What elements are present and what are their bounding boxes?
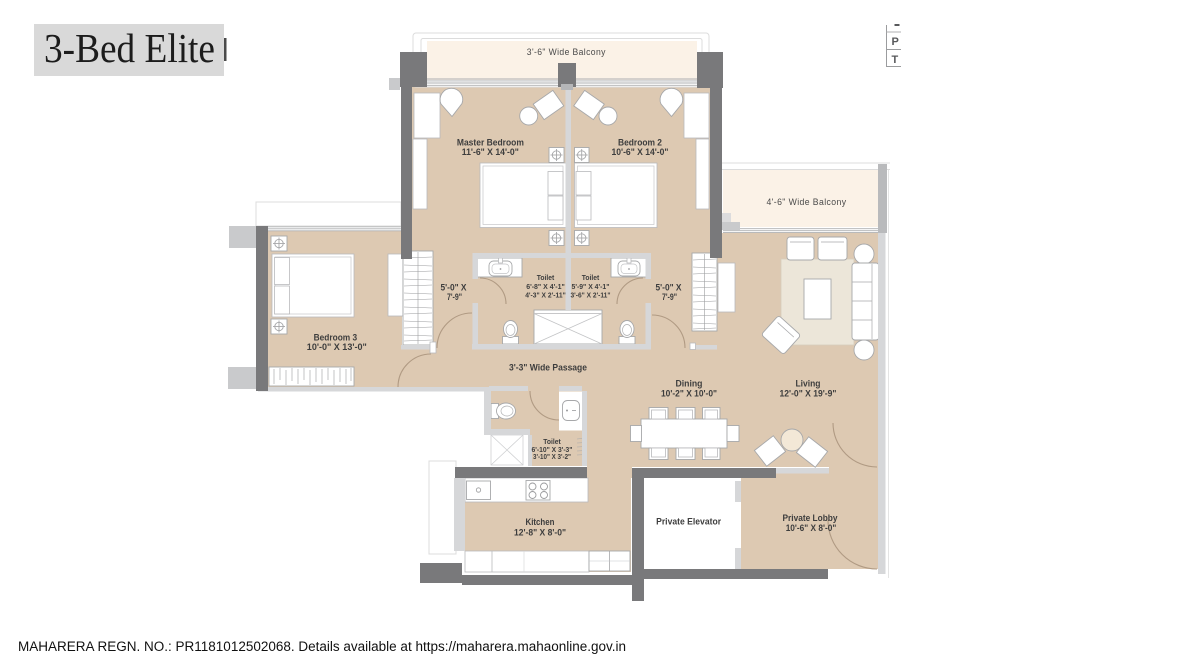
svg-text:7'-9": 7'-9" <box>662 292 677 302</box>
svg-text:3'-6" Wide Balcony: 3'-6" Wide Balcony <box>527 47 606 57</box>
svg-text:10'-6" X 14'-0": 10'-6" X 14'-0" <box>612 147 669 157</box>
svg-text:10'-2" X 10'-0": 10'-2" X 10'-0" <box>661 389 717 399</box>
svg-text:T: T <box>892 54 899 66</box>
svg-text:Private Elevator: Private Elevator <box>656 517 721 528</box>
svg-text:Toilet: Toilet <box>582 273 600 282</box>
svg-text:10'-6" X 8'-0": 10'-6" X 8'-0" <box>786 523 837 533</box>
svg-text:3'-6" X 2'-11": 3'-6" X 2'-11" <box>571 291 611 300</box>
svg-text:7'-9": 7'-9" <box>447 292 462 302</box>
svg-text:Kitchen: Kitchen <box>526 517 555 528</box>
svg-text:4'-3" X 2'-11": 4'-3" X 2'-11" <box>525 291 566 300</box>
svg-text:3'-3" Wide Passage: 3'-3" Wide Passage <box>509 363 587 374</box>
svg-text:Toilet: Toilet <box>537 273 555 282</box>
svg-text:11'-6" X 14'-0": 11'-6" X 14'-0" <box>462 147 519 157</box>
svg-text:12'-8" X 8'-0": 12'-8" X 8'-0" <box>514 528 566 538</box>
svg-text:P: P <box>892 36 899 48</box>
svg-text:3'-10" X 3'-2": 3'-10" X 3'-2" <box>533 452 571 461</box>
svg-text:MAHARERA REGN. NO.: PR11810125: MAHARERA REGN. NO.: PR1181012502068. Det… <box>18 639 626 654</box>
svg-text:3-Bed Elite: 3-Bed Elite <box>44 25 215 71</box>
svg-text:10'-0" X 13'-0": 10'-0" X 13'-0" <box>307 342 367 352</box>
svg-text:4'-6" Wide Balcony: 4'-6" Wide Balcony <box>767 197 847 207</box>
svg-text:12'-0" X 19'-9": 12'-0" X 19'-9" <box>780 389 837 399</box>
